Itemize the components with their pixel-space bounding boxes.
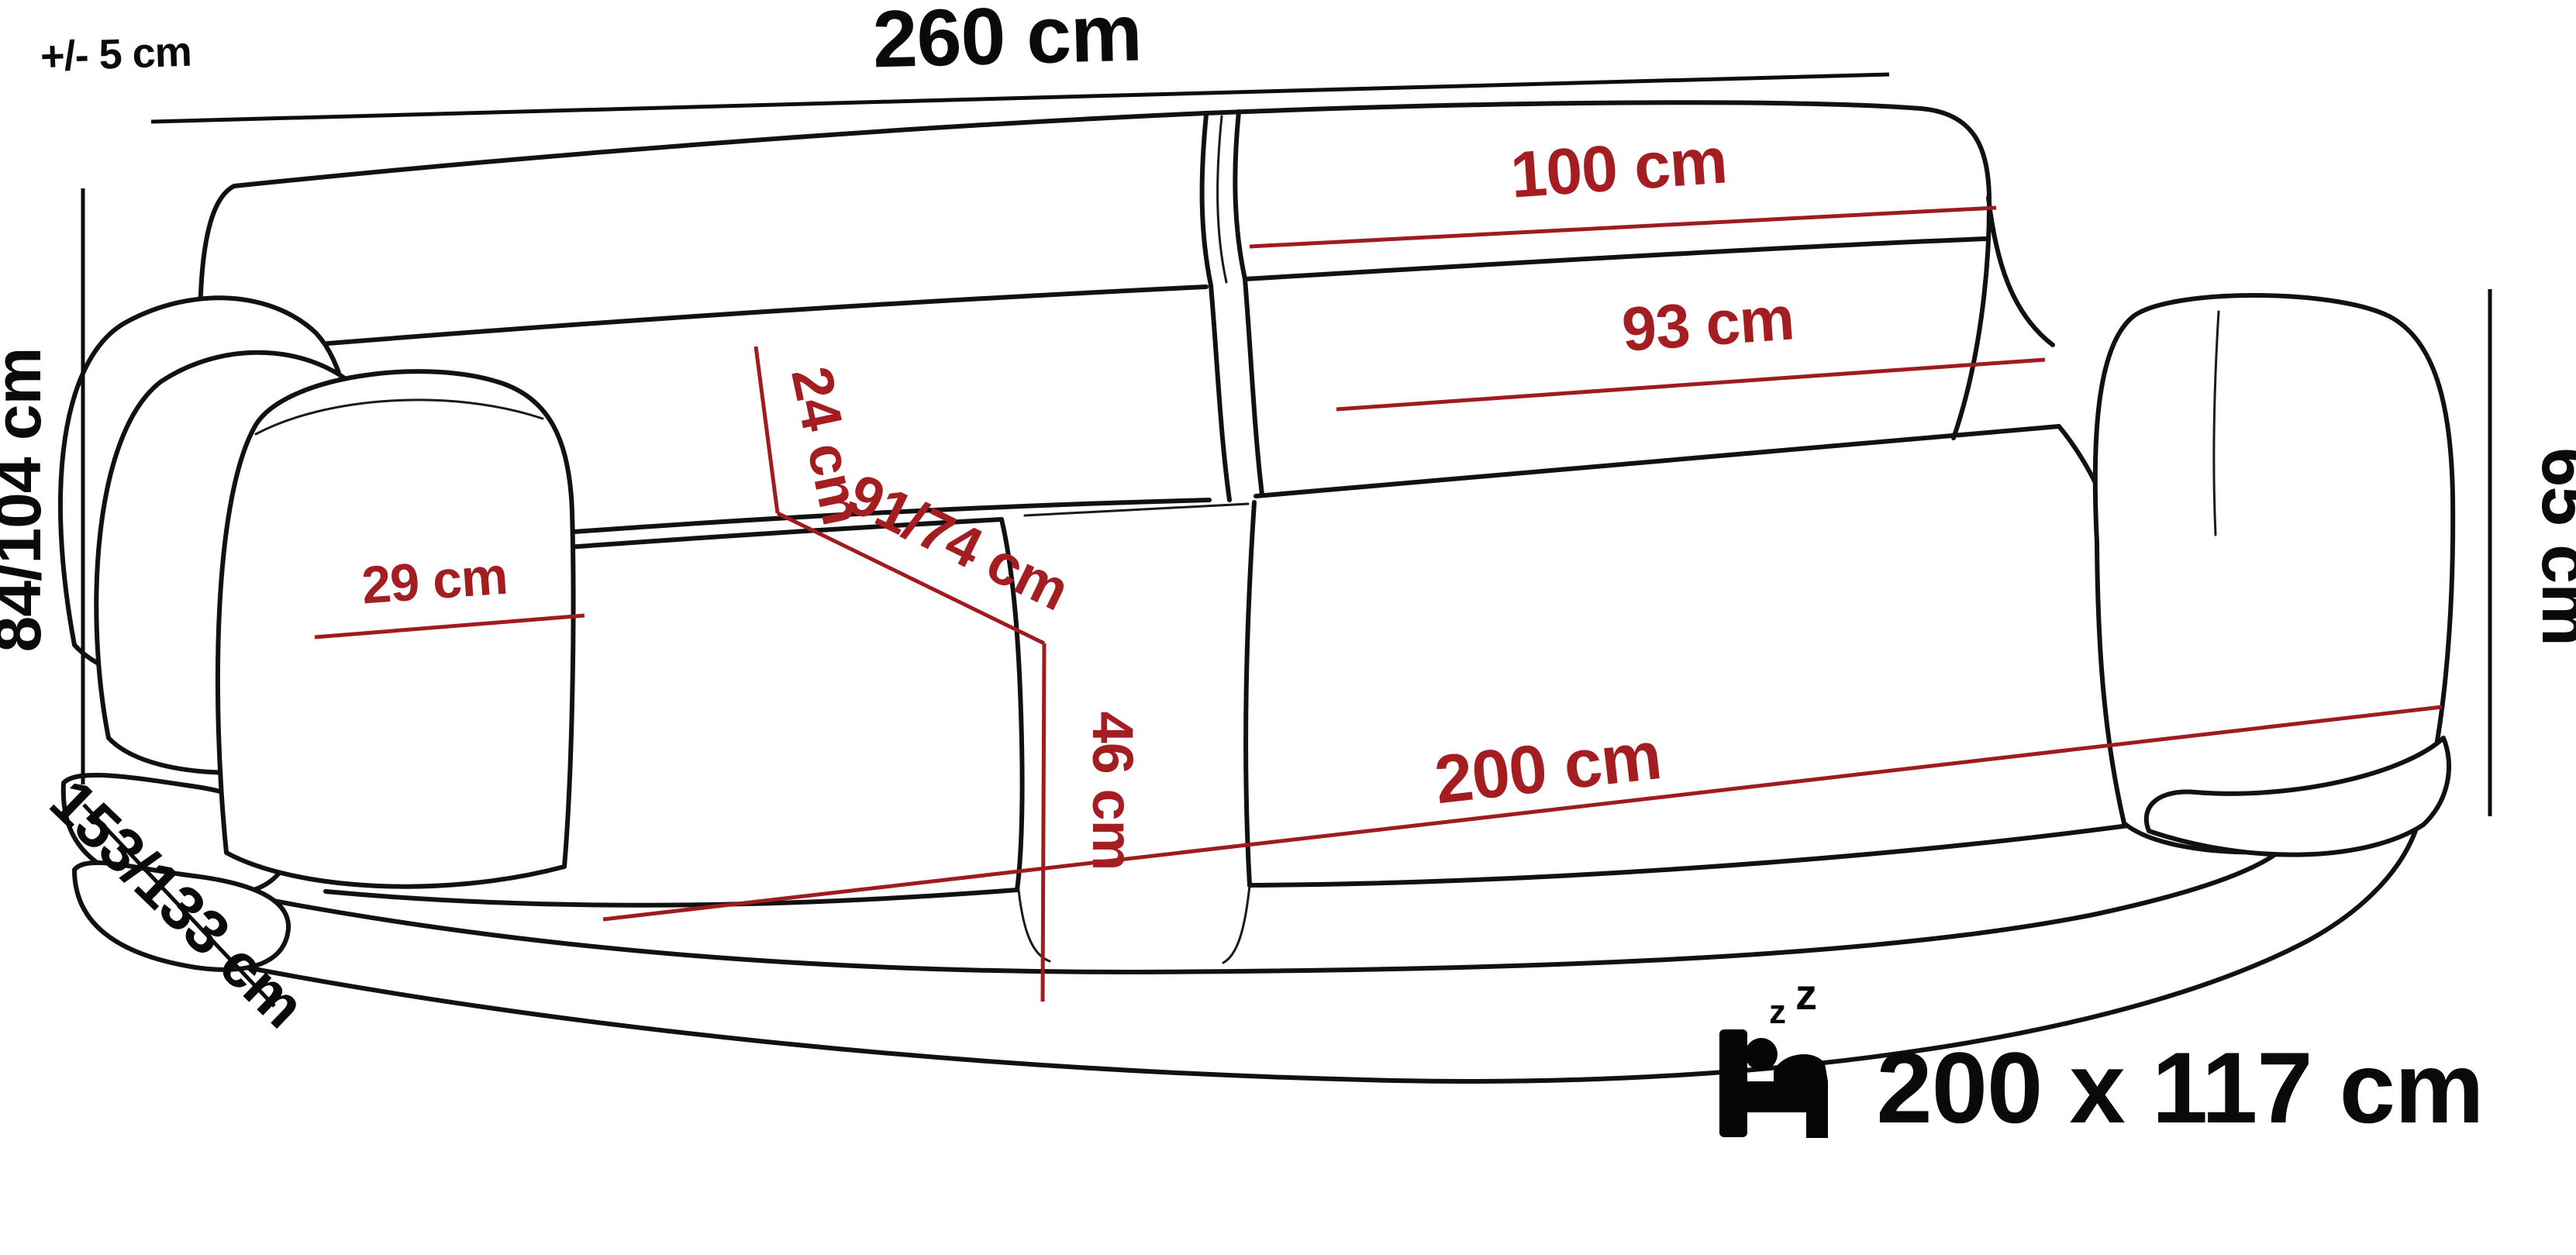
seat-width-label: 200 cm xyxy=(1431,716,1665,818)
headrest-split-crease xyxy=(1218,116,1226,282)
backrest-right-bottom xyxy=(1256,426,2059,496)
sofa-back-right-edge xyxy=(1988,198,2053,345)
headrest-width-line xyxy=(1250,208,1996,247)
headrest-split-left xyxy=(1202,115,1211,285)
arm-height-label: 65 cm xyxy=(2527,447,2576,646)
backrest-split-left xyxy=(1211,285,1229,500)
sleeper-head xyxy=(1745,1038,1778,1071)
bed-foot xyxy=(1806,1110,1828,1138)
backrest-split-right xyxy=(1245,279,1262,495)
right-seat-front-corner-crease xyxy=(1223,885,1250,963)
sleeping-area: z z 200 x 117 cm xyxy=(1719,970,2484,1144)
headrest-split-right xyxy=(1235,112,1245,279)
tolerance-label: +/- 5 cm xyxy=(40,29,192,81)
armrest-width-label: 29 cm xyxy=(360,546,509,615)
height-range-label: 84/104 cm xyxy=(0,348,54,653)
overall-width-label: 260 cm xyxy=(871,0,1143,85)
zzz-small-icon: z xyxy=(1769,993,1786,1031)
seat-height-line xyxy=(1043,643,1044,1002)
headrest-right-bottom-edge xyxy=(1245,239,1986,279)
sleeping-area-label: 200 x 117 cm xyxy=(1876,1031,2483,1144)
headrest-left-bottom-edge xyxy=(242,287,1206,350)
seat-height-label: 46 cm xyxy=(1081,712,1145,871)
overall-width-line xyxy=(151,74,1889,122)
headrest-height-line xyxy=(756,347,778,513)
backrest-width-line xyxy=(1336,360,2045,409)
left-seat-front-edge xyxy=(326,890,1017,905)
bed-platform xyxy=(1719,1081,1828,1112)
sleeper-body xyxy=(1774,1054,1828,1081)
right-seat-left-edge xyxy=(1246,502,1254,885)
sleeping-bed-icon: z z xyxy=(1719,970,1828,1138)
right-seat-front-edge xyxy=(1250,823,2146,885)
diagram-canvas: +/- 5 cm 260 cm 84/104 cm 153/133 cm 65 … xyxy=(0,0,2576,1255)
sofa-dimension-diagram: +/- 5 cm 260 cm 84/104 cm 153/133 cm 65 … xyxy=(0,0,2576,1255)
backrest-width-label: 93 cm xyxy=(1619,283,1796,364)
zzz-large-icon: z xyxy=(1795,970,1817,1019)
seat-depth-label: 91/74 cm xyxy=(838,461,1078,622)
headrest-width-label: 100 cm xyxy=(1509,123,1729,211)
